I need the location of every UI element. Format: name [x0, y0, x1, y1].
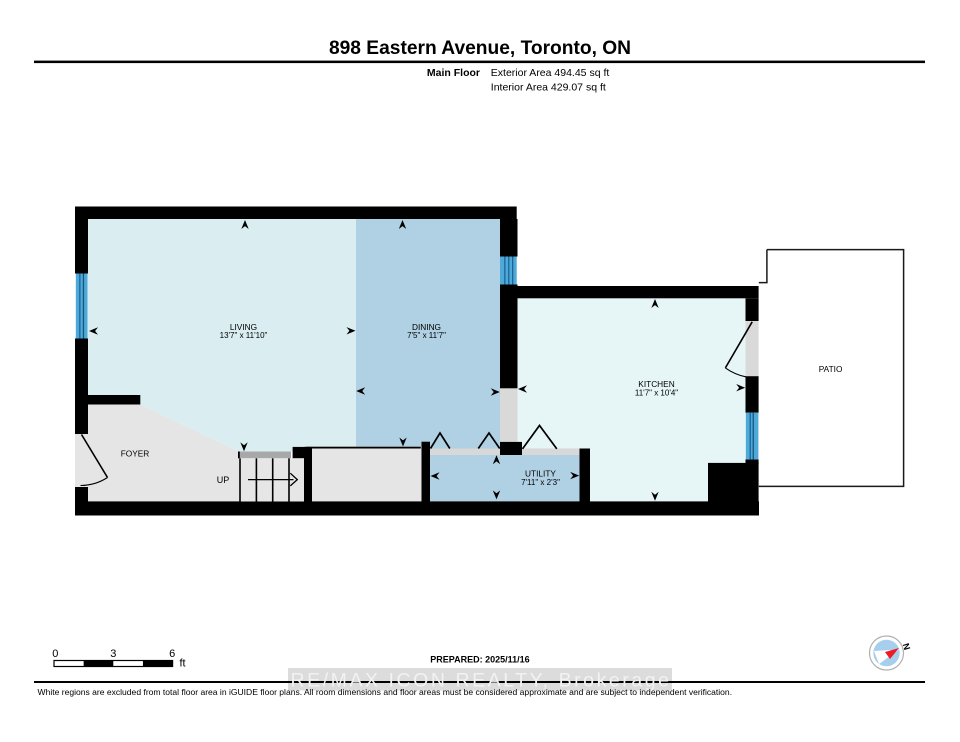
svg-text:Main Floor: Main Floor	[427, 67, 480, 79]
svg-text:898 Eastern Avenue, Toronto, O: 898 Eastern Avenue, Toronto, ON	[329, 38, 631, 59]
svg-text:11'7" x 10'4": 11'7" x 10'4"	[635, 388, 678, 397]
svg-text:Interior Area 429.07 sq ft: Interior Area 429.07 sq ft	[491, 82, 606, 94]
svg-text:PATIO: PATIO	[819, 364, 843, 374]
svg-text:White regions are excluded fro: White regions are excluded from total fl…	[38, 687, 733, 697]
svg-text:0: 0	[52, 648, 58, 660]
svg-text:PREPARED: 2025/11/16: PREPARED: 2025/11/16	[430, 655, 529, 665]
svg-text:7'11" x 2'3": 7'11" x 2'3"	[521, 478, 560, 487]
svg-text:13'7" x 11'10": 13'7" x 11'10"	[220, 331, 268, 340]
svg-text:FOYER: FOYER	[121, 448, 150, 458]
svg-text:3: 3	[110, 648, 116, 660]
svg-text:6: 6	[169, 648, 175, 660]
svg-text:Exterior Area 494.45 sq ft: Exterior Area 494.45 sq ft	[491, 67, 610, 79]
svg-text:ft: ft	[180, 658, 186, 670]
svg-text:7'5" x 11'7": 7'5" x 11'7"	[407, 331, 446, 340]
svg-text:UP: UP	[217, 475, 230, 485]
